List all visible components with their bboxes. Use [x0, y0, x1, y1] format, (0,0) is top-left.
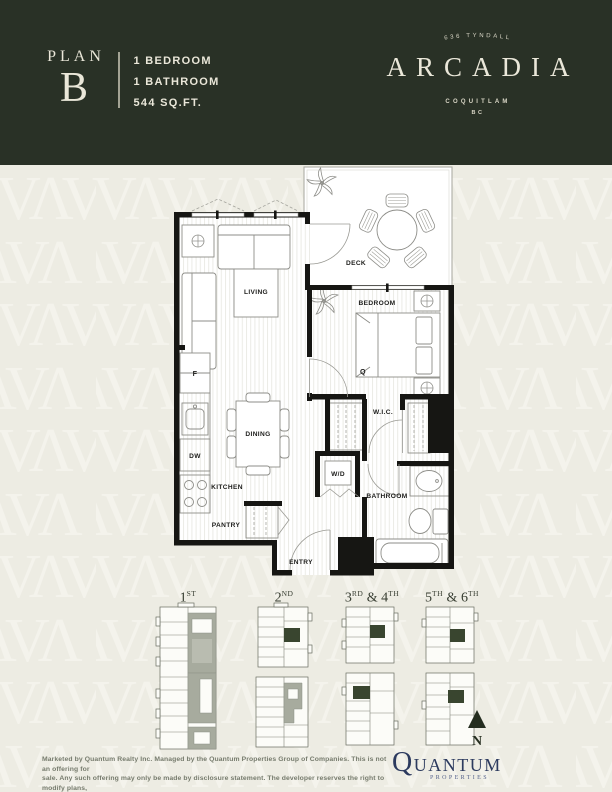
keyplan-drawing-3-4 — [330, 601, 414, 751]
wic-label: W.I.C. — [373, 409, 393, 416]
keyplan-floor-2: 2ND — [242, 586, 326, 756]
disclaimer-line-1: Marketed by Quantum Realty Inc. Managed … — [42, 755, 390, 774]
quantum-name: QUANTUM — [392, 750, 502, 778]
north-label: N — [464, 735, 490, 748]
disclaimer-line-2: sale. Any such offering may only be made… — [42, 774, 390, 792]
keyplan-floor-1: 1ST — [146, 586, 230, 758]
plan-word: PLAN — [47, 48, 105, 66]
keyplan-drawing-1 — [146, 601, 230, 753]
quantum-logo: QUANTUM PROPERTIES — [392, 750, 502, 781]
fridge-label: F — [193, 369, 198, 378]
floorplan-drawing: LIVING DECK BEDROOM Q W.I.C. DINING W/D … — [162, 165, 454, 580]
keyplan-label-2: 2ND — [242, 586, 326, 601]
plan-name: PLAN B — [46, 48, 102, 110]
spec-area: 544 SQ.FT. — [134, 93, 220, 114]
plan-title-block: PLAN B 1 BEDROOM 1 BATHROOM 544 SQ.FT. — [46, 48, 220, 114]
address-arch: 636 TYNDALL — [444, 33, 512, 42]
dining-label: DINING — [245, 431, 270, 438]
entry-label: ENTRY — [289, 559, 313, 566]
keyplan-label-5-6: 5TH & 6TH — [410, 586, 494, 601]
bed-size-label: Q — [360, 367, 366, 376]
spec-bedrooms: 1 BEDROOM — [134, 51, 220, 72]
logo-arch-text: 636 TYNDALL — [372, 24, 584, 50]
brand-region: BC — [372, 110, 584, 116]
keyplan-label-3-4: 3RD & 4TH — [330, 586, 414, 601]
plan-specs: 1 BEDROOM 1 BATHROOM 544 SQ.FT. — [134, 51, 220, 114]
wd-label: W/D — [331, 471, 345, 478]
svg-text:636 TYNDALL: 636 TYNDALL — [444, 33, 512, 42]
arcadia-logo: 636 TYNDALL ARCADIA COQUITLAM BC — [372, 24, 584, 116]
brochure-page: PLAN B 1 BEDROOM 1 BATHROOM 544 SQ.FT. 6… — [0, 0, 612, 792]
spec-bathrooms: 1 BATHROOM — [134, 72, 220, 93]
divider — [118, 52, 120, 108]
keyplan-drawing-2 — [242, 601, 326, 751]
bathroom-label: BATHROOM — [366, 493, 407, 500]
disclaimer-text: Marketed by Quantum Realty Inc. Managed … — [42, 755, 390, 792]
north-arrow-icon — [464, 708, 490, 730]
dw-label: DW — [189, 453, 201, 460]
deck-label: DECK — [346, 260, 366, 267]
header-band: PLAN B 1 BEDROOM 1 BATHROOM 544 SQ.FT. 6… — [0, 0, 612, 165]
plan-letter: B — [60, 66, 88, 110]
north-arrow: N — [464, 708, 490, 748]
bedroom-label: BEDROOM — [359, 300, 396, 307]
brand-city: COQUITLAM — [372, 99, 584, 105]
keyplan-floor-3-4: 3RD & 4TH — [330, 586, 414, 756]
pantry-label: PANTRY — [212, 522, 241, 529]
kitchen-label: KITCHEN — [211, 484, 243, 491]
brand-name: ARCADIA — [382, 52, 584, 83]
living-label: LIVING — [244, 289, 268, 296]
keyplan-label-1: 1ST — [146, 586, 230, 601]
